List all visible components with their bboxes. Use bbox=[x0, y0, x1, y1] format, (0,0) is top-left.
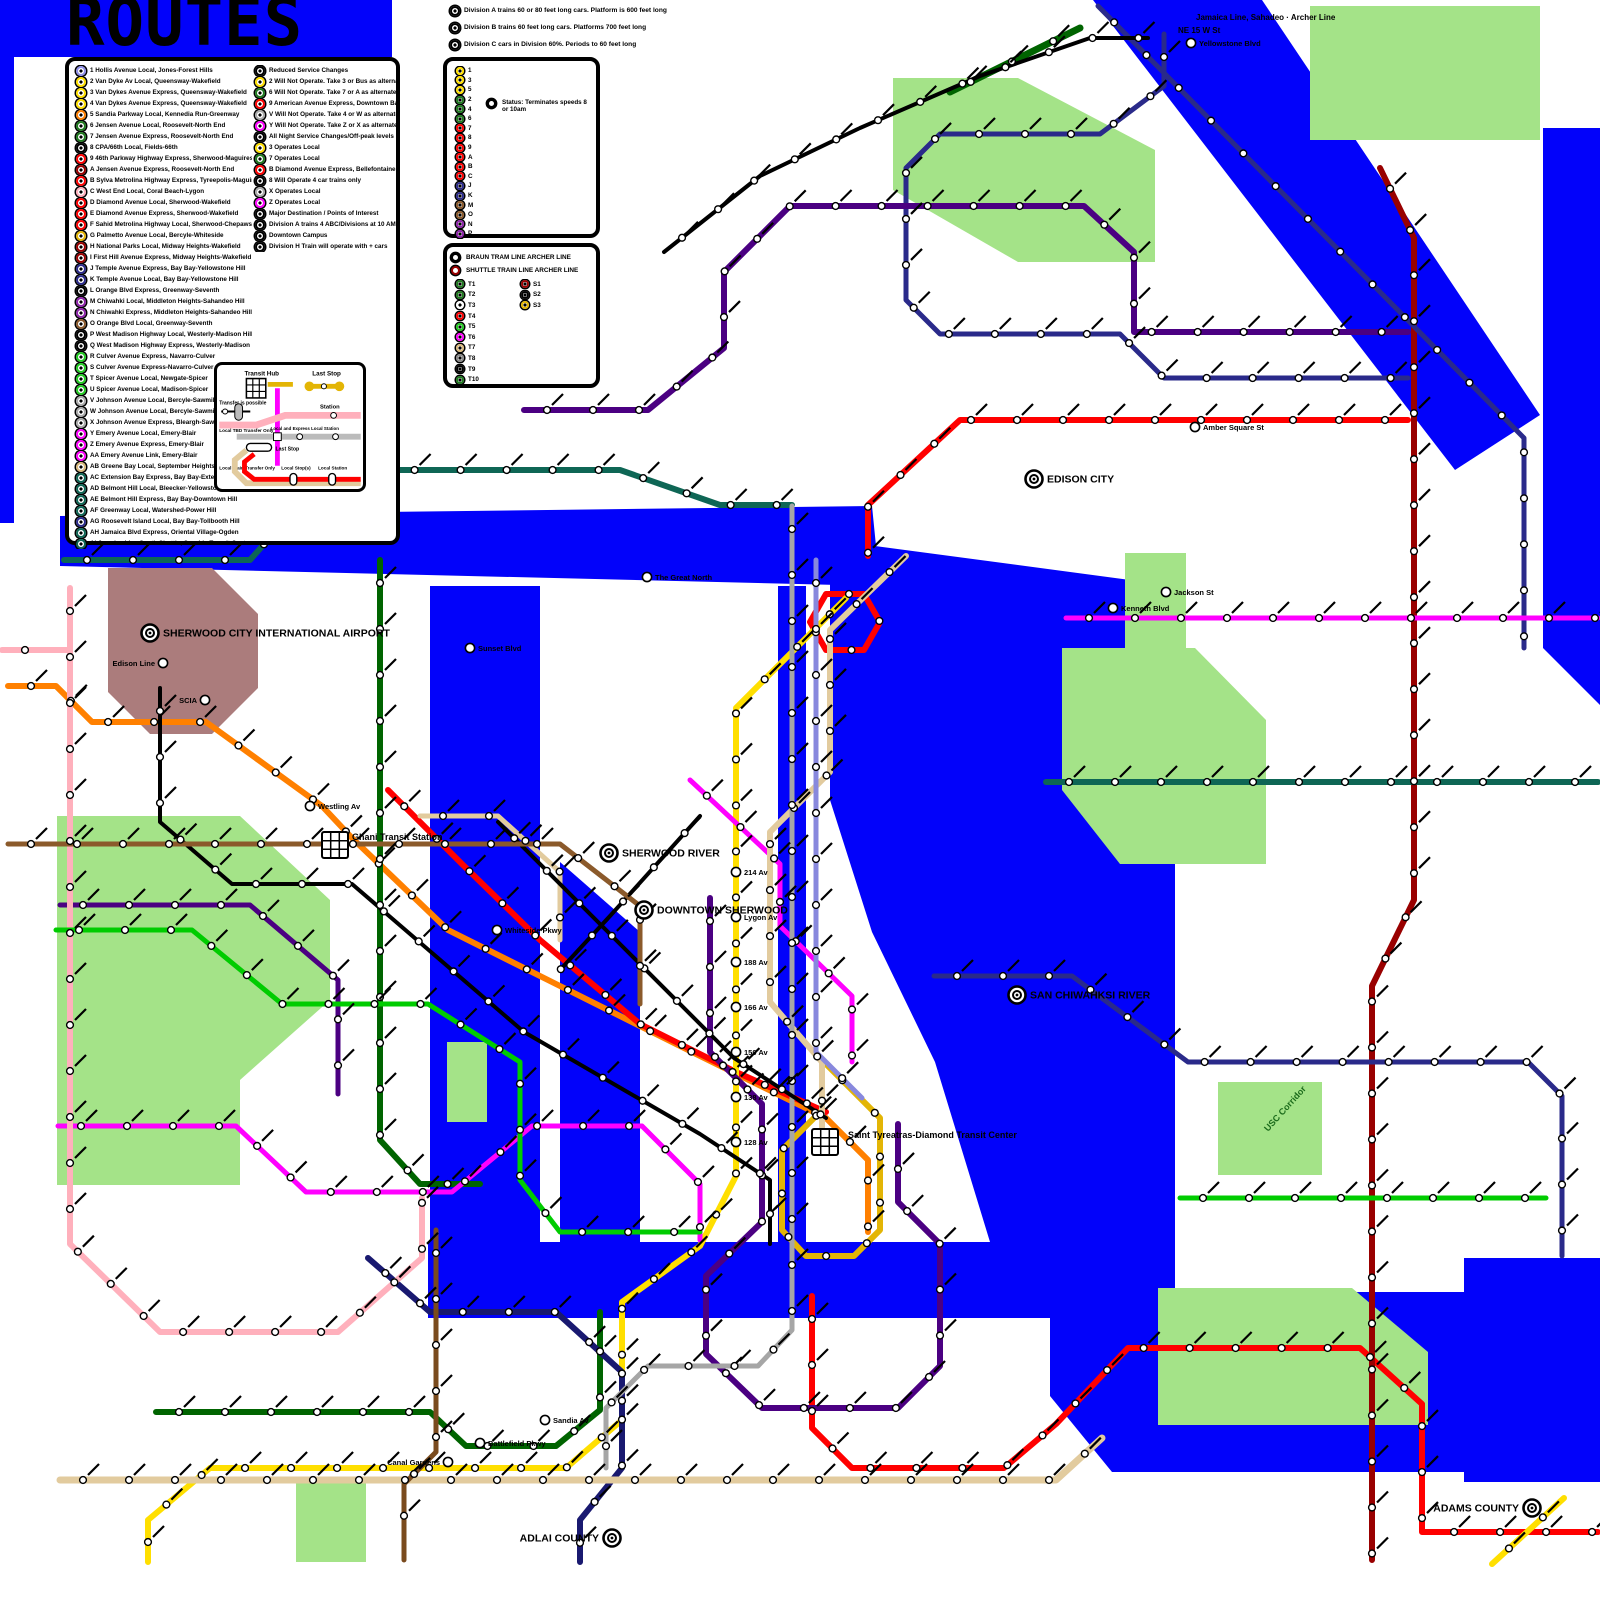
legend-entry: E Diamond Avenue Express, Sherwood-Wakef… bbox=[74, 208, 252, 219]
station-dot bbox=[639, 1097, 646, 1104]
route-ring-icon bbox=[76, 253, 86, 263]
station-dot bbox=[1431, 1059, 1438, 1066]
station-dot bbox=[575, 855, 582, 862]
station-dot bbox=[848, 647, 855, 654]
station-label-tick bbox=[180, 1464, 191, 1475]
station-dot bbox=[67, 792, 74, 799]
station-dot bbox=[1104, 1367, 1111, 1374]
station-dot bbox=[726, 1250, 733, 1257]
station-dot bbox=[457, 467, 464, 474]
station-label-tick bbox=[1348, 1046, 1359, 1057]
station-label-tick bbox=[1419, 857, 1430, 868]
station-dot bbox=[715, 206, 722, 213]
station-dot bbox=[908, 1477, 915, 1484]
map-text-label: Ghani Transit Station bbox=[352, 832, 443, 842]
legend-entry-label: O Orange Blvd Local, Greenway-Seventh bbox=[90, 320, 212, 327]
station-label-tick bbox=[1254, 1182, 1265, 1193]
route-ring-icon bbox=[76, 330, 86, 340]
station-dot bbox=[1411, 594, 1418, 601]
station-dot bbox=[295, 942, 302, 949]
station-dot bbox=[505, 1309, 512, 1316]
station-dot bbox=[564, 987, 571, 994]
station-dot bbox=[771, 855, 778, 862]
station-dot bbox=[272, 769, 279, 776]
named-station-dot[interactable] bbox=[1161, 587, 1170, 596]
station-dot bbox=[1050, 38, 1057, 45]
legend-entry-label: T Spicer Avenue Local, Newgate-Spicer bbox=[90, 375, 208, 382]
station-dot bbox=[1411, 272, 1418, 279]
station-label-tick bbox=[967, 1452, 978, 1463]
station-dot bbox=[28, 841, 35, 848]
station-dot bbox=[67, 884, 74, 891]
station-dot bbox=[1161, 54, 1168, 61]
legend-entry: F Sahid Metrolina Highway Local, Sherwoo… bbox=[74, 219, 252, 230]
legend-entry: 1 Hollis Avenue Local, Jones-Forest Hill… bbox=[74, 65, 252, 76]
station-label-tick bbox=[1256, 1046, 1267, 1057]
route-ring-icon bbox=[521, 301, 529, 309]
route-ring-icon bbox=[76, 363, 86, 373]
station-label-tick bbox=[1419, 811, 1430, 822]
station-dot bbox=[122, 927, 129, 934]
station-dot bbox=[1434, 347, 1441, 354]
route-ring-icon bbox=[521, 291, 529, 299]
legend-entry: T10 bbox=[454, 374, 479, 385]
bullseye-center bbox=[1016, 994, 1019, 997]
named-station-dot[interactable] bbox=[1186, 38, 1195, 47]
transit-hub-icon[interactable] bbox=[812, 1129, 838, 1155]
station-label-tick bbox=[1459, 1516, 1470, 1527]
station-dot bbox=[327, 1189, 334, 1196]
bullseye-center bbox=[643, 909, 646, 912]
station-dot bbox=[608, 1399, 615, 1406]
station-label-tick bbox=[1304, 362, 1315, 373]
route-ring-icon bbox=[456, 301, 464, 309]
station-dot bbox=[913, 1465, 920, 1472]
station-dot bbox=[1369, 1044, 1376, 1051]
station-dot bbox=[433, 1296, 440, 1303]
station-dot bbox=[751, 177, 758, 184]
legend-entry: AE Belmont Hill Express, Bay Bay-Downtow… bbox=[74, 494, 252, 505]
route-ring-icon bbox=[76, 132, 86, 142]
station-dot bbox=[1592, 615, 1599, 622]
station-dot bbox=[737, 824, 744, 831]
legend-entry: P West Madison Highway Local, Westerly-M… bbox=[74, 329, 252, 340]
key-local-express-label: Local and Express Local Station bbox=[271, 426, 340, 431]
station-dot bbox=[503, 467, 510, 474]
station-dot bbox=[260, 913, 267, 920]
station-dot bbox=[733, 894, 740, 901]
legend-entry-label: M Chiwahki Local, Middleton Heights-Saha… bbox=[90, 298, 245, 305]
station-dot bbox=[22, 647, 29, 654]
legend-entry: T1 bbox=[454, 279, 479, 290]
legend-entry: 2 Will Not Operate. Take 3 or Bus as alt… bbox=[253, 76, 399, 87]
station-label-tick bbox=[1390, 404, 1401, 415]
station-dot bbox=[1411, 548, 1418, 555]
station-dot bbox=[335, 1062, 342, 1069]
station-dot bbox=[176, 557, 183, 564]
station-dot bbox=[1369, 1228, 1376, 1235]
station-dot bbox=[488, 841, 495, 848]
route-ring-icon bbox=[76, 539, 86, 549]
legend-entry-label: AB Greene Bay Local, September Heights-S… bbox=[90, 463, 232, 470]
station-dot bbox=[511, 835, 518, 842]
station-dot bbox=[1126, 340, 1133, 347]
station-dot bbox=[551, 1309, 558, 1316]
named-station-dot[interactable] bbox=[731, 1002, 740, 1011]
legend-entry: T5 bbox=[454, 321, 479, 332]
station-dot bbox=[707, 918, 714, 925]
station-label-tick bbox=[821, 981, 832, 992]
station-label-tick bbox=[75, 687, 86, 698]
station-label-tick bbox=[1486, 1046, 1497, 1057]
station-dot bbox=[1451, 1529, 1458, 1536]
station-dot bbox=[1408, 615, 1415, 622]
station-dot bbox=[557, 966, 564, 973]
route-ring-icon bbox=[255, 242, 265, 252]
station-label-tick bbox=[1419, 765, 1430, 776]
station-label-tick bbox=[1532, 1046, 1543, 1057]
station-dot bbox=[67, 1114, 74, 1121]
legend-entry-label: 4 Van Dykes Avenue Express, Queensway-Wa… bbox=[90, 100, 247, 107]
bullseye-icon bbox=[451, 266, 460, 275]
station-dot bbox=[685, 1363, 692, 1370]
station-dot bbox=[954, 973, 961, 980]
station-label-tick bbox=[1000, 318, 1011, 329]
station-dot bbox=[1367, 1354, 1374, 1361]
station-label-tick bbox=[1232, 602, 1243, 613]
station-dot bbox=[591, 1499, 598, 1506]
station-dot bbox=[1434, 779, 1441, 786]
station-label-tick bbox=[385, 705, 396, 716]
named-station-dot[interactable] bbox=[200, 695, 209, 704]
named-station-dot[interactable] bbox=[305, 801, 314, 810]
station-dot bbox=[74, 841, 81, 848]
station-dot bbox=[1194, 329, 1201, 336]
station-dot bbox=[78, 1123, 85, 1130]
station-dot bbox=[242, 1465, 249, 1472]
named-station-dot[interactable] bbox=[731, 867, 740, 876]
route-ring-icon bbox=[76, 187, 86, 197]
legend-entry-label: T1 bbox=[468, 281, 475, 288]
station-label-tick bbox=[1350, 362, 1361, 373]
station-dot bbox=[380, 908, 387, 915]
legend-entry: N Chiwahki Express, Middleton Heights-Sa… bbox=[74, 307, 252, 318]
legend-entry: T8 bbox=[454, 353, 479, 364]
station-dot bbox=[991, 331, 998, 338]
station-dot bbox=[472, 1465, 479, 1472]
station-label-tick bbox=[83, 1236, 94, 1247]
park-area bbox=[447, 1042, 487, 1122]
station-dot bbox=[1387, 375, 1394, 382]
station-dot bbox=[1045, 49, 1052, 56]
named-station-dot[interactable] bbox=[492, 925, 501, 934]
station-label: Kenneth Blvd bbox=[1121, 604, 1170, 613]
station-dot bbox=[789, 572, 796, 579]
legend-entry: T9 bbox=[454, 364, 479, 375]
station-label-tick bbox=[353, 868, 364, 879]
station-dot bbox=[253, 881, 260, 888]
legend-entry: 2 Van Dyke Av Local, Queensway-Wakefield bbox=[74, 76, 252, 87]
legend-entry-label: E Diamond Avenue Express, Sherwood-Wakef… bbox=[90, 210, 238, 217]
transfer-capsule bbox=[235, 404, 243, 420]
route-ring-icon bbox=[255, 132, 265, 142]
station-label-tick bbox=[1249, 316, 1260, 327]
station-dot bbox=[76, 927, 83, 934]
transfer-square bbox=[274, 433, 282, 441]
route-ring-icon bbox=[456, 115, 464, 123]
named-station-dot[interactable] bbox=[642, 572, 651, 581]
station-dot bbox=[218, 902, 225, 909]
legend-entry-label: 4 bbox=[468, 106, 472, 113]
station-dot bbox=[740, 1061, 747, 1068]
station-label-tick bbox=[945, 1320, 956, 1331]
station-dot bbox=[1131, 300, 1138, 307]
named-station-dot[interactable] bbox=[1190, 422, 1199, 431]
station-dot bbox=[579, 1229, 586, 1236]
legend-entry-label: S Culver Avenue Express-Navarro-Culver bbox=[90, 364, 213, 371]
station-label: 138 Av bbox=[744, 1093, 768, 1102]
station-label-tick bbox=[266, 828, 277, 839]
station-dot bbox=[1135, 35, 1142, 42]
station-label-tick bbox=[382, 1176, 393, 1187]
named-station-dot[interactable] bbox=[1108, 603, 1117, 612]
station-label-tick bbox=[526, 1452, 537, 1463]
station-dot bbox=[1022, 131, 1029, 138]
legend-entry-label: F Sahid Metrolina Highway Local, Sherwoo… bbox=[90, 221, 252, 228]
legend-entry: 5 Sandia Parkway Local, Kennedia Run-Gre… bbox=[74, 109, 252, 120]
station-label-tick bbox=[1567, 1169, 1578, 1180]
station-dot bbox=[1124, 1014, 1131, 1021]
station-label-tick bbox=[542, 828, 553, 839]
station-dot bbox=[819, 1097, 826, 1104]
legend-entry-label: Reduced Service Changes bbox=[269, 67, 348, 74]
legend-entry: S2 bbox=[519, 290, 541, 301]
route-ring-icon bbox=[255, 66, 265, 76]
route-ring-icon bbox=[456, 153, 464, 161]
legend-entry: G Palmetto Avenue Local, Bercyle-Whitesi… bbox=[74, 230, 252, 241]
station-dot bbox=[846, 1405, 853, 1412]
station-dot bbox=[814, 1053, 821, 1060]
station-label-tick bbox=[740, 1350, 751, 1361]
station-label-tick bbox=[318, 783, 329, 794]
station-label-tick bbox=[420, 454, 431, 465]
station-label-tick bbox=[604, 454, 615, 465]
station-dot bbox=[517, 1172, 524, 1179]
station-label-tick bbox=[1419, 489, 1430, 500]
station-dot bbox=[789, 802, 796, 809]
station-dot bbox=[1152, 417, 1159, 424]
station-label-tick bbox=[687, 1029, 698, 1040]
local-station-capsule bbox=[329, 474, 336, 486]
station-dot bbox=[1543, 1529, 1550, 1536]
station-dot bbox=[1521, 633, 1528, 640]
route-ring-icon bbox=[76, 176, 86, 186]
tram-ring-list-b: S1S2S3 bbox=[519, 279, 541, 311]
station-label-tick bbox=[558, 454, 569, 465]
route-ring-icon bbox=[76, 88, 86, 98]
legend-entry: 7 bbox=[454, 124, 473, 134]
station-label-tick bbox=[1092, 318, 1103, 329]
station-dot bbox=[254, 1142, 261, 1149]
station-label-tick bbox=[767, 1113, 778, 1124]
station-dot bbox=[825, 970, 832, 977]
legend-entry: AH Jamaica Blvd Express, Oriental Villag… bbox=[74, 527, 252, 538]
legend-entry-label: T5 bbox=[468, 323, 475, 330]
legend-entry: 3 Van Dykes Avenue Express, Queensway-Wa… bbox=[74, 87, 252, 98]
station-dot bbox=[867, 1465, 874, 1472]
legend-entry-label: 5 bbox=[468, 86, 472, 93]
station-dot bbox=[1086, 615, 1093, 622]
station-dot bbox=[1559, 1181, 1566, 1188]
station-dot bbox=[832, 203, 839, 210]
station-dot bbox=[892, 1405, 899, 1412]
station-label-tick bbox=[466, 454, 477, 465]
tram-legend-subtitle-row: SHUTTLE TRAIN LINE ARCHER LINE bbox=[451, 264, 592, 277]
station-dot bbox=[731, 1363, 738, 1370]
station-dot bbox=[1272, 183, 1279, 190]
station-dot bbox=[67, 1160, 74, 1167]
station-label-tick bbox=[1208, 1182, 1219, 1193]
station-dot bbox=[543, 867, 550, 874]
legend-entry: B Diamond Avenue Express, Bellefontaine … bbox=[253, 164, 399, 175]
route-ring-icon bbox=[76, 352, 86, 362]
station-label-tick bbox=[694, 1350, 705, 1361]
station-dot bbox=[865, 503, 872, 510]
place-label: ADAMS COUNTY bbox=[1433, 1503, 1519, 1515]
route-ring-icon bbox=[255, 121, 265, 131]
station-dot bbox=[945, 331, 952, 338]
station-dot bbox=[1316, 615, 1323, 622]
last-stop-dot bbox=[305, 381, 315, 391]
station-dot bbox=[813, 764, 820, 771]
station-dot bbox=[863, 1240, 870, 1247]
station-dot bbox=[80, 1477, 87, 1484]
station-dot bbox=[304, 841, 311, 848]
station-label-tick bbox=[351, 815, 362, 826]
legend-entry: AG Roosevelt Island Local, Bay Bay-Tollb… bbox=[74, 516, 252, 527]
station-label-tick bbox=[855, 1392, 866, 1403]
legend-entry: C bbox=[454, 172, 473, 182]
station-label-tick bbox=[1419, 719, 1430, 730]
legend-entry: Reduced Service Changes bbox=[253, 65, 399, 76]
legend-entry-label: G Palmetto Avenue Local, Bercyle-Whitesi… bbox=[90, 232, 224, 239]
station-label-tick bbox=[729, 301, 740, 312]
legend-entry: 7 Jensen Avenue Express, Roosevelt-North… bbox=[74, 131, 252, 142]
station-dot bbox=[208, 942, 215, 949]
station-label-tick bbox=[1395, 173, 1406, 184]
station-dot bbox=[823, 1253, 830, 1260]
route-ring-icon bbox=[76, 154, 86, 164]
station-dot bbox=[789, 1216, 796, 1223]
station-label-tick bbox=[1139, 288, 1150, 299]
station-dot bbox=[733, 710, 740, 717]
named-station-dot[interactable] bbox=[465, 643, 474, 652]
station-dot bbox=[1559, 1135, 1566, 1142]
station-dot bbox=[619, 1351, 626, 1358]
station-dot bbox=[557, 914, 564, 921]
station-label: 188 Av bbox=[744, 958, 768, 967]
station-dot bbox=[140, 1313, 147, 1320]
station-label-tick bbox=[954, 318, 965, 329]
station-dot bbox=[1072, 1400, 1079, 1407]
legend-entry-label: L Orange Blvd Express, Greenway-Seventh bbox=[90, 287, 219, 294]
station-label-tick bbox=[552, 394, 563, 405]
station-dot bbox=[789, 526, 796, 533]
station-dot bbox=[1143, 52, 1150, 59]
station-dot bbox=[268, 1409, 275, 1416]
named-station-dot[interactable] bbox=[731, 1092, 740, 1101]
station-dot bbox=[954, 1477, 961, 1484]
station-dot bbox=[433, 1342, 440, 1349]
route-ring-icon bbox=[456, 230, 464, 238]
station-label-tick bbox=[741, 789, 752, 800]
station-dot bbox=[733, 1032, 740, 1039]
named-station-dot[interactable] bbox=[443, 1457, 452, 1466]
station-dot bbox=[785, 1234, 792, 1241]
station-dot bbox=[356, 1309, 363, 1316]
station-label-tick bbox=[1377, 1123, 1388, 1134]
station-dot bbox=[789, 664, 796, 671]
station-label-tick bbox=[385, 797, 396, 808]
route-ring-icon bbox=[521, 280, 529, 288]
route-ring-icon bbox=[76, 121, 86, 131]
route-ring-icon bbox=[456, 354, 464, 362]
legend-entry: Z Operates Local bbox=[253, 197, 399, 208]
station-dot bbox=[377, 810, 384, 817]
key-last-stop-label: Last Stop bbox=[312, 371, 341, 378]
legend-entry-label: AH Jamaica Blvd Express, Oriental Villag… bbox=[90, 529, 239, 536]
station-label-tick bbox=[682, 985, 693, 996]
station-label-tick bbox=[230, 1396, 241, 1407]
station-dot bbox=[619, 1462, 626, 1469]
station-dot bbox=[733, 1170, 740, 1177]
named-station-dot[interactable] bbox=[731, 1137, 740, 1146]
station-dot bbox=[176, 1409, 183, 1416]
station-dot bbox=[212, 866, 219, 873]
route-ring-icon bbox=[456, 211, 464, 219]
station-label-tick bbox=[1565, 1078, 1576, 1089]
station-dot bbox=[1430, 1195, 1437, 1202]
legend-entry-label: S1 bbox=[533, 281, 541, 288]
station-label-tick bbox=[821, 797, 832, 808]
station-dot bbox=[151, 719, 158, 726]
route-ring-icon bbox=[76, 77, 86, 87]
route-ring-icon bbox=[76, 440, 86, 450]
route-ring-icon bbox=[450, 23, 460, 33]
named-station-dot[interactable] bbox=[540, 1415, 549, 1424]
transit-hub-icon[interactable] bbox=[322, 832, 348, 858]
bullseye-center bbox=[1033, 478, 1036, 481]
station-dot bbox=[1521, 449, 1528, 456]
route-ring-icon bbox=[255, 143, 265, 153]
station-dot bbox=[1290, 417, 1297, 424]
station-label-tick bbox=[88, 1464, 99, 1475]
station-dot bbox=[1411, 456, 1418, 463]
station-label-tick bbox=[795, 190, 806, 201]
station-label-tick bbox=[414, 1396, 425, 1407]
named-station-dot[interactable] bbox=[158, 658, 167, 667]
named-station-dot[interactable] bbox=[475, 1438, 484, 1447]
named-station-dot[interactable] bbox=[731, 1047, 740, 1056]
station-label-tick bbox=[1068, 404, 1079, 415]
legend-entry-label: B Diamond Avenue Express, Bellefontaine … bbox=[269, 166, 399, 173]
named-station-dot[interactable] bbox=[731, 957, 740, 966]
station-dot bbox=[767, 1210, 774, 1217]
legend-entry: B bbox=[454, 162, 473, 172]
station-dot bbox=[1208, 117, 1215, 124]
station-label-tick bbox=[153, 1526, 164, 1537]
station-dot bbox=[767, 887, 774, 894]
